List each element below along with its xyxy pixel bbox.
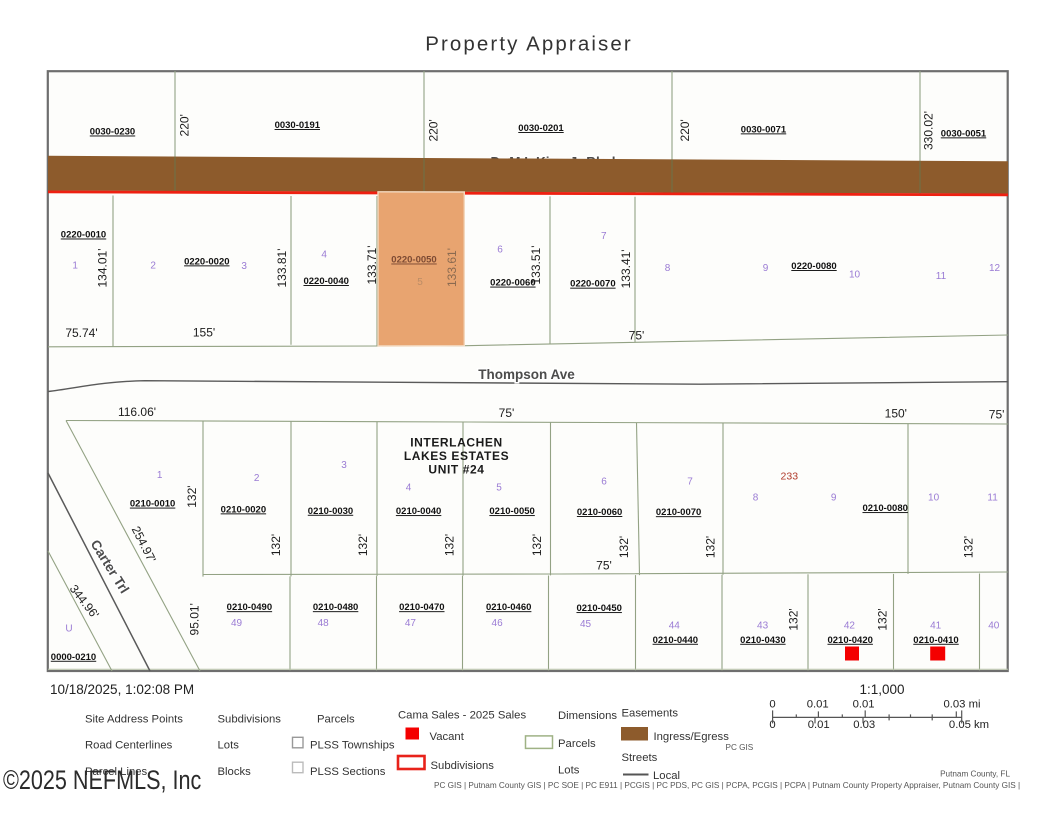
svg-text:9: 9 [831,493,837,504]
svg-text:6: 6 [497,245,503,256]
svg-text:46: 46 [492,618,504,629]
svg-text:8: 8 [665,263,671,274]
svg-text:8: 8 [753,493,759,504]
svg-text:3: 3 [341,460,347,471]
svg-text:Site Address Points: Site Address Points [85,714,183,726]
svg-text:0.01: 0.01 [853,699,875,711]
svg-text:Dimensions: Dimensions [558,710,617,722]
svg-text:Property Appraiser: Property Appraiser [425,33,633,56]
svg-text:Blocks: Blocks [218,766,252,778]
svg-text:0210-0020: 0210-0020 [221,504,266,515]
svg-text:0210-0420: 0210-0420 [827,635,872,646]
svg-text:2: 2 [150,260,156,271]
svg-text:134.01': 134.01' [96,249,110,288]
svg-text:43: 43 [757,620,769,631]
svg-text:Road Centerlines: Road Centerlines [85,740,173,752]
svg-text:132': 132' [443,534,457,556]
svg-text:133.41': 133.41' [619,249,633,288]
svg-text:0210-0050: 0210-0050 [489,506,534,517]
svg-text:0210-0440: 0210-0440 [653,635,698,646]
svg-text:49: 49 [231,618,243,629]
svg-text:11: 11 [987,493,998,504]
svg-text:7: 7 [687,477,693,488]
svg-text:132': 132' [530,534,544,556]
svg-text:Cama Sales - 2025 Sales: Cama Sales - 2025 Sales [398,710,526,722]
svg-text:Ingress/Egress: Ingress/Egress [654,731,730,743]
svg-text:0210-0410: 0210-0410 [913,635,958,646]
svg-text:0210-0070: 0210-0070 [656,507,701,518]
svg-text:233: 233 [781,471,799,483]
svg-text:132': 132' [356,534,370,556]
svg-text:132': 132' [962,536,976,558]
svg-text:133.51': 133.51' [529,246,543,285]
svg-text:132': 132' [787,608,801,630]
svg-text:0210-0450: 0210-0450 [576,603,621,614]
svg-text:0030-0201: 0030-0201 [518,123,564,134]
svg-text:0210-0480: 0210-0480 [313,602,358,613]
svg-text:0030-0230: 0030-0230 [90,127,135,138]
svg-text:0.03 mi: 0.03 mi [943,699,980,711]
svg-text:Streets: Streets [622,752,658,764]
svg-text:41: 41 [930,620,942,631]
svg-text:Parcels: Parcels [558,738,596,750]
svg-text:0210-0430: 0210-0430 [740,635,785,646]
svg-text:5: 5 [496,483,502,494]
svg-text:116.06': 116.06' [118,405,156,419]
svg-text:0220-0070: 0220-0070 [570,279,615,290]
svg-text:48: 48 [318,618,330,629]
svg-text:0030-0051: 0030-0051 [941,128,987,139]
svg-text:220': 220' [427,119,441,141]
svg-text:Subdivisions: Subdivisions [218,714,282,726]
svg-text:UNIT #24: UNIT #24 [428,462,484,476]
svg-text:9: 9 [763,263,769,274]
svg-text:3: 3 [241,261,247,272]
svg-text:10: 10 [928,493,940,504]
svg-text:U: U [65,624,72,635]
svg-text:75': 75' [499,406,515,420]
svg-text:INTERLACHEN: INTERLACHEN [410,436,503,450]
svg-text:PLSS Sections: PLSS Sections [310,766,386,778]
svg-text:132': 132' [876,608,890,630]
svg-text:0210-0460: 0210-0460 [486,602,531,613]
svg-text:6: 6 [601,477,607,488]
svg-text:95.01': 95.01' [188,603,202,635]
svg-text:133.71': 133.71' [365,246,379,285]
svg-text:0210-0080: 0210-0080 [862,503,907,514]
svg-text:44: 44 [669,620,681,631]
svg-text:11: 11 [936,271,947,282]
svg-text:220': 220' [178,114,192,136]
svg-text:45: 45 [580,619,592,630]
svg-text:10: 10 [849,270,861,281]
svg-text:LAKES ESTATES: LAKES ESTATES [404,449,509,463]
svg-text:Parcels: Parcels [317,714,355,726]
svg-text:0.01: 0.01 [808,719,830,731]
svg-text:0220-0080: 0220-0080 [791,261,836,272]
svg-text:Thompson Ave: Thompson Ave [478,367,575,382]
svg-text:0210-0040: 0210-0040 [396,506,441,517]
svg-text:42: 42 [844,620,856,631]
svg-text:0.01: 0.01 [807,699,829,711]
svg-text:10/18/2025, 1:02:08 PM: 10/18/2025, 1:02:08 PM [50,682,194,697]
svg-text:PC GIS | Putnam County GIS | P: PC GIS | Putnam County GIS | PC SOE | PC… [434,781,1020,790]
svg-text:Putnam County, FL: Putnam County, FL [940,770,1010,779]
svg-text:150': 150' [885,407,907,421]
svg-text:2: 2 [254,473,260,484]
svg-text:4: 4 [406,483,412,494]
svg-text:330.02': 330.02' [922,111,936,150]
svg-text:132': 132' [617,536,631,558]
svg-text:1:1,000: 1:1,000 [859,682,904,697]
svg-text:1: 1 [157,470,163,481]
svg-text:PLSS Townships: PLSS Townships [310,740,395,752]
svg-text:75': 75' [989,408,1005,422]
svg-text:7: 7 [601,231,607,242]
svg-text:75': 75' [596,559,612,573]
svg-text:0.05 km: 0.05 km [949,719,989,731]
svg-text:0030-0071: 0030-0071 [741,124,787,135]
svg-text:0220-0020: 0220-0020 [184,256,229,267]
svg-text:132': 132' [185,485,199,507]
svg-text:0000-0210: 0000-0210 [51,652,96,663]
svg-text:0210-0060: 0210-0060 [577,507,622,518]
svg-text:132': 132' [704,536,718,558]
svg-text:0: 0 [769,699,775,711]
svg-text:12: 12 [989,263,1001,274]
svg-text:0030-0191: 0030-0191 [275,120,321,131]
svg-text:Lots: Lots [218,740,240,752]
svg-text:0220-0050: 0220-0050 [391,255,436,266]
svg-text:0210-0470: 0210-0470 [399,602,444,613]
svg-text:133.81': 133.81' [275,249,289,288]
svg-text:©2025 NEFMLS, Inc: ©2025 NEFMLS, Inc [3,766,201,796]
svg-text:1: 1 [72,260,78,271]
svg-text:Easements: Easements [622,708,679,720]
svg-text:75.74': 75.74' [65,326,97,340]
svg-text:155': 155' [193,326,215,340]
svg-text:Lots: Lots [558,765,580,777]
svg-text:0220-0040: 0220-0040 [303,276,348,287]
svg-text:Subdivisions: Subdivisions [431,760,495,772]
svg-text:133.61': 133.61' [445,248,459,287]
svg-text:220': 220' [678,119,692,141]
svg-text:4: 4 [321,250,327,261]
svg-text:75': 75' [629,329,645,343]
svg-text:0210-0490: 0210-0490 [227,602,272,613]
svg-text:0210-0030: 0210-0030 [308,506,353,517]
svg-text:0.03: 0.03 [853,719,875,731]
svg-text:132': 132' [269,534,283,556]
svg-text:40: 40 [988,620,1000,631]
svg-text:5: 5 [417,277,423,288]
svg-text:PC GIS: PC GIS [726,743,754,752]
svg-text:0220-0010: 0220-0010 [61,230,106,241]
svg-text:0210-0010: 0210-0010 [130,499,175,510]
svg-text:47: 47 [405,618,417,629]
svg-text:Vacant: Vacant [430,731,465,743]
